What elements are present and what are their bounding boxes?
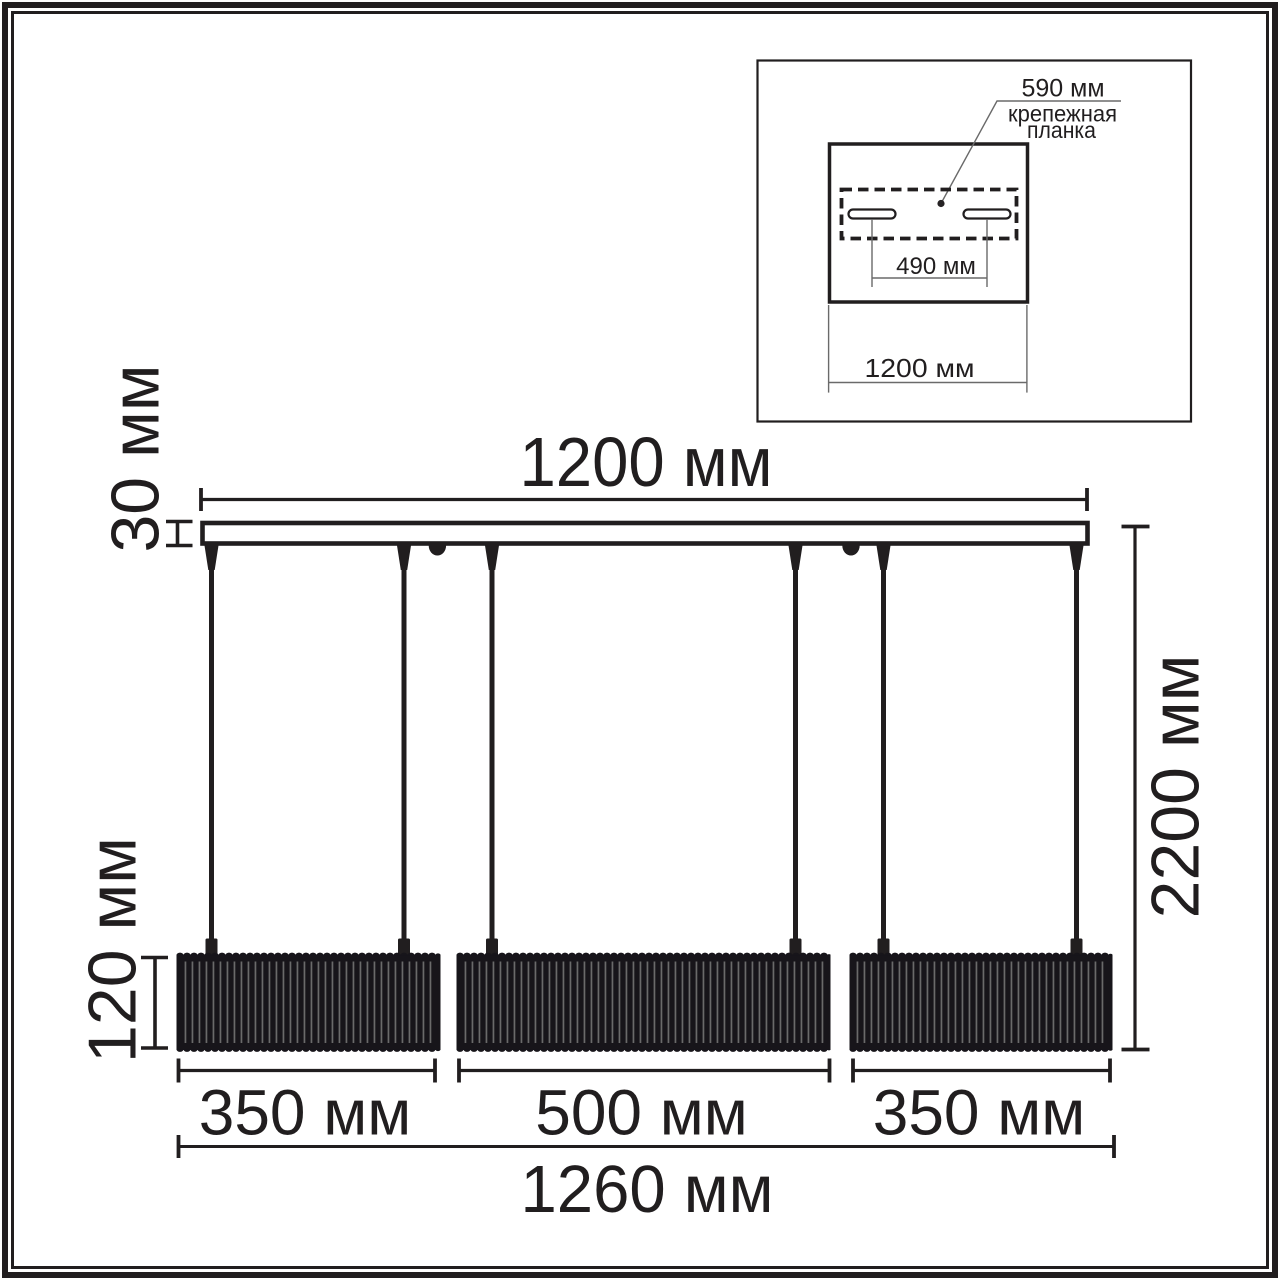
svg-text:30 мм: 30 мм: [98, 364, 174, 552]
svg-text:350 мм: 350 мм: [199, 1077, 412, 1149]
svg-text:350 мм: 350 мм: [873, 1077, 1086, 1149]
svg-text:1200 мм: 1200 мм: [865, 353, 975, 383]
svg-text:1260 мм: 1260 мм: [521, 1152, 774, 1227]
svg-text:2200 мм: 2200 мм: [1138, 655, 1214, 919]
svg-text:планка: планка: [1027, 117, 1096, 143]
svg-text:490 мм: 490 мм: [896, 253, 976, 280]
svg-text:120 мм: 120 мм: [75, 837, 151, 1063]
svg-text:500 мм: 500 мм: [535, 1077, 748, 1149]
svg-text:1200 мм: 1200 мм: [520, 423, 773, 501]
svg-text:590 мм: 590 мм: [1021, 75, 1104, 103]
